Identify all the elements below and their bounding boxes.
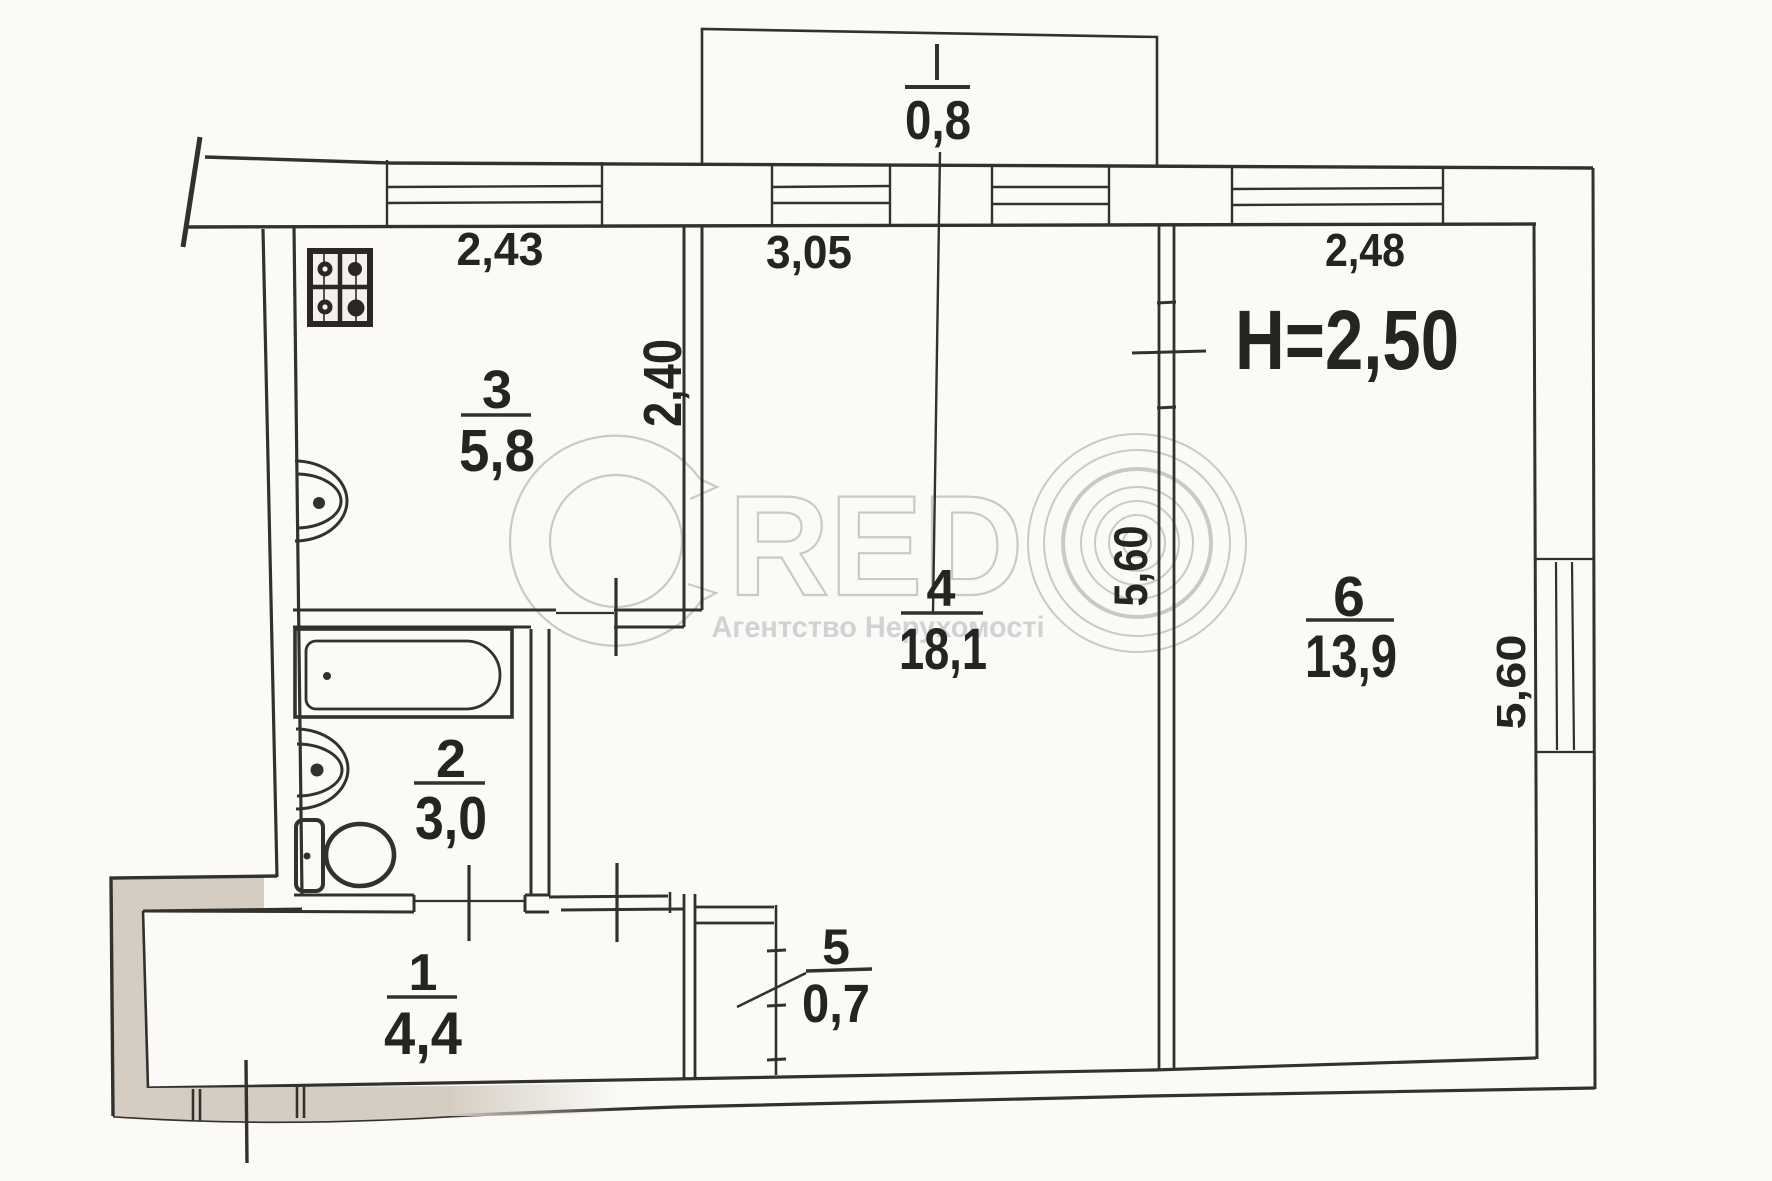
svg-text:18,1: 18,1 (899, 617, 987, 682)
svg-text:5,60: 5,60 (1104, 526, 1157, 607)
svg-text:2: 2 (436, 729, 466, 789)
svg-text:5,8: 5,8 (459, 418, 535, 484)
svg-text:0,8: 0,8 (905, 89, 971, 151)
svg-text:3,05: 3,05 (766, 226, 852, 278)
svg-text:H=2,50: H=2,50 (1235, 293, 1459, 387)
svg-text:Агентство Нерухомості: Агентство Нерухомості (712, 611, 1045, 644)
svg-text:1: 1 (409, 944, 438, 1002)
svg-text:RED: RED (729, 467, 1024, 626)
svg-text:4,4: 4,4 (384, 1000, 463, 1067)
svg-text:5: 5 (822, 919, 850, 975)
svg-text:13,9: 13,9 (1305, 623, 1397, 690)
svg-text:3: 3 (482, 360, 512, 420)
svg-text:0,7: 0,7 (802, 974, 870, 1034)
svg-text:4: 4 (927, 560, 956, 618)
svg-text:5,60: 5,60 (1488, 635, 1534, 730)
svg-text:2,40: 2,40 (633, 339, 693, 427)
svg-text:2,48: 2,48 (1325, 224, 1405, 276)
svg-text:3,0: 3,0 (415, 785, 487, 852)
svg-text:2,43: 2,43 (457, 223, 544, 275)
